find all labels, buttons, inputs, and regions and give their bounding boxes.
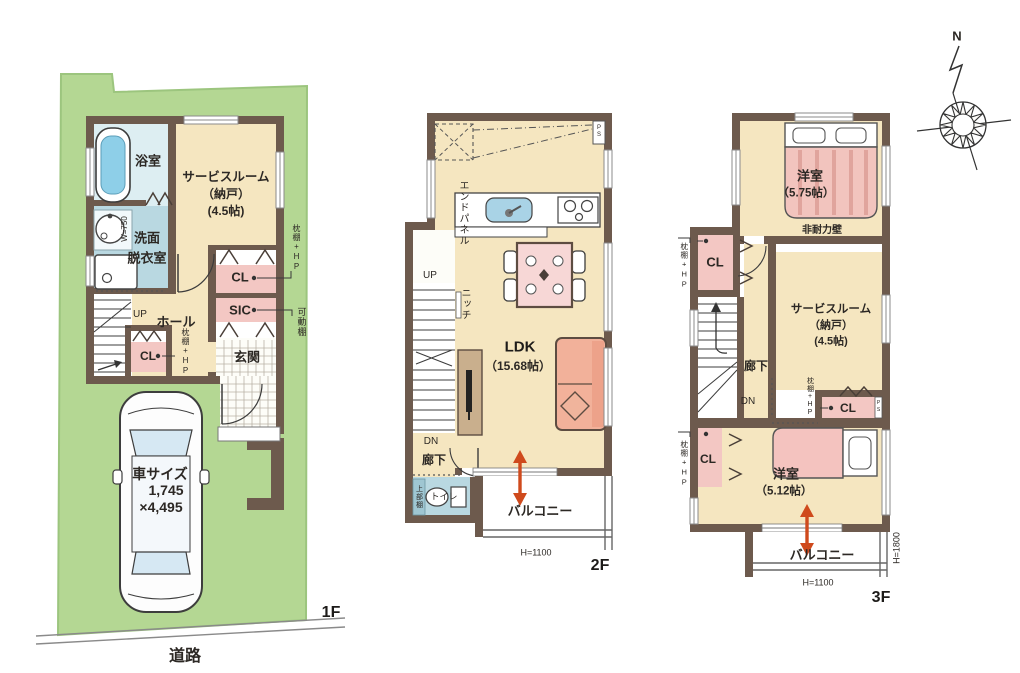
- dim-window-height-3f: H=1800: [893, 532, 902, 564]
- stairs-up-label-1f: UP: [133, 310, 147, 320]
- room-label-balcony-3f: バルコニー: [790, 549, 855, 562]
- room-label-serviceroom-3f: サービスルーム: [791, 304, 871, 316]
- floor-label-3f: 3F: [872, 590, 891, 606]
- room-label-washroom2-1f: 脱衣室: [127, 252, 166, 265]
- dim-balcony-height-2f: H=1100: [520, 549, 551, 558]
- closet-label-cl-hall-1f: CL: [140, 350, 156, 362]
- compass-rose: [917, 46, 1011, 170]
- room-label-serviceroom-sub-3f: （納戸）: [809, 321, 853, 332]
- room-label-bedroom-second-size-3f: （5.12帖）: [756, 486, 813, 498]
- floor-2f-building: [405, 113, 612, 550]
- note-shelf-hall-1f: 枕棚+HP: [181, 328, 189, 376]
- note-end-panel-2f: エンドパネル: [457, 180, 467, 246]
- note-shelf-top-3f: 枕棚+HP: [680, 243, 688, 290]
- room-label-serviceroom-size-3f: (4.5帖): [814, 337, 848, 348]
- room-label-bedroom-second-3f: 洋室: [773, 468, 799, 481]
- floor-3f-building: [678, 113, 890, 577]
- floor-label-2f: 2F: [591, 558, 610, 574]
- car-size-label: 車サイズ: [132, 467, 188, 481]
- closet-label-cl-bottom-3f: CL: [700, 453, 716, 465]
- room-label-ldk-2f: LDK: [505, 340, 536, 355]
- closet-label-cl-1f: CL: [231, 271, 248, 284]
- note-niche-2f: ニッチ: [459, 288, 469, 321]
- room-label-toilet-2f: トイレ: [430, 493, 457, 502]
- car-size-width: 1,745: [148, 483, 183, 497]
- note-pipe-space-2f: PS: [596, 125, 602, 139]
- room-label-entrance-1f: 玄関: [234, 351, 260, 364]
- room-label-ldk-size-2f: （15.68帖）: [485, 360, 551, 372]
- room-label-washroom-1f: 洗面: [134, 232, 160, 245]
- note-shelf-right-1f: 枕棚+HP: [292, 224, 300, 272]
- room-label-serviceroom-sub-1f: （納戸）: [202, 188, 250, 200]
- closet-label-sic-1f: SIC: [229, 304, 251, 317]
- note-pipe-space-3f: PS: [876, 400, 881, 414]
- compass-north-label: N: [952, 30, 961, 43]
- room-label-corridor-2f: 廊下: [422, 454, 446, 466]
- room-label-serviceroom-1f: サービスルーム: [182, 171, 269, 184]
- stairs-up-label-2f: UP: [423, 271, 437, 281]
- note-movable-shelf-1f: 可動棚: [297, 307, 306, 337]
- room-label-bedroom-main-size-3f: （5.75帖）: [778, 188, 835, 200]
- room-label-corridor-3f: 廊下: [744, 360, 768, 372]
- closet-label-cl-mid-3f: CL: [840, 402, 856, 414]
- note-shelf-mid-3f: 枕棚+HP: [807, 377, 814, 417]
- stairs-down-label-2f: DN: [424, 437, 438, 447]
- floorplan-canvas: 浴室 サービスルーム （納戸） (4.5帖) 洗面 脱衣室 W=750 CL S…: [0, 0, 1020, 673]
- floorplan-drawing: [0, 0, 1020, 673]
- room-label-bath-1f: 浴室: [135, 155, 161, 168]
- dim-basin-width-1f: W=750: [121, 216, 129, 242]
- room-label-balcony-2f: バルコニー: [508, 505, 573, 518]
- dim-balcony-height-3f: H=1100: [802, 579, 833, 588]
- stairs-down-label-3f: DN: [741, 397, 755, 407]
- road-label: 道路: [169, 649, 201, 665]
- closet-label-cl-top-3f: CL: [706, 256, 723, 269]
- room-label-hall-1f: ホール: [156, 316, 195, 329]
- car-size-length: ×4,495: [139, 500, 182, 514]
- note-non-bearing-wall-3f: 非耐力壁: [802, 226, 842, 236]
- room-label-bedroom-main-3f: 洋室: [797, 170, 823, 183]
- note-upper-shelf-2f: 上部棚: [416, 485, 423, 509]
- room-label-serviceroom-size-1f: (4.5帖): [208, 205, 245, 217]
- note-shelf-bottom-3f: 枕棚+HP: [680, 441, 688, 488]
- floor-label-1f: 1F: [322, 605, 341, 621]
